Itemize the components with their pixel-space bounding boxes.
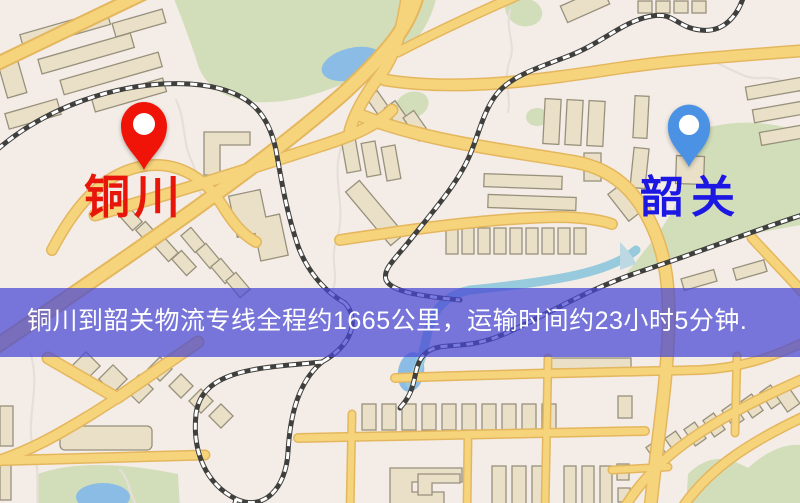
destination-pin-icon xyxy=(666,101,712,169)
map-background xyxy=(0,0,800,503)
destination-pin-hole xyxy=(679,115,699,135)
origin-pin-body xyxy=(121,102,167,170)
origin-pin-icon xyxy=(119,98,169,172)
destination-label: 韶关 xyxy=(640,176,742,220)
destination-pin-body xyxy=(668,105,710,167)
route-info-text: 铜川到韶关物流专线全程约1665公里，运输时间约23小时5分钟. xyxy=(27,301,747,337)
route-info-banner: 铜川到韶关物流专线全程约1665公里，运输时间约23小时5分钟. xyxy=(0,288,800,357)
map-canvas: 铜川 韶关 铜川到韶关物流专线全程约1665公里，运输时间约23小时5分钟. xyxy=(0,0,800,503)
origin-pin-hole xyxy=(133,113,155,135)
origin-label: 铜川 xyxy=(84,174,184,220)
